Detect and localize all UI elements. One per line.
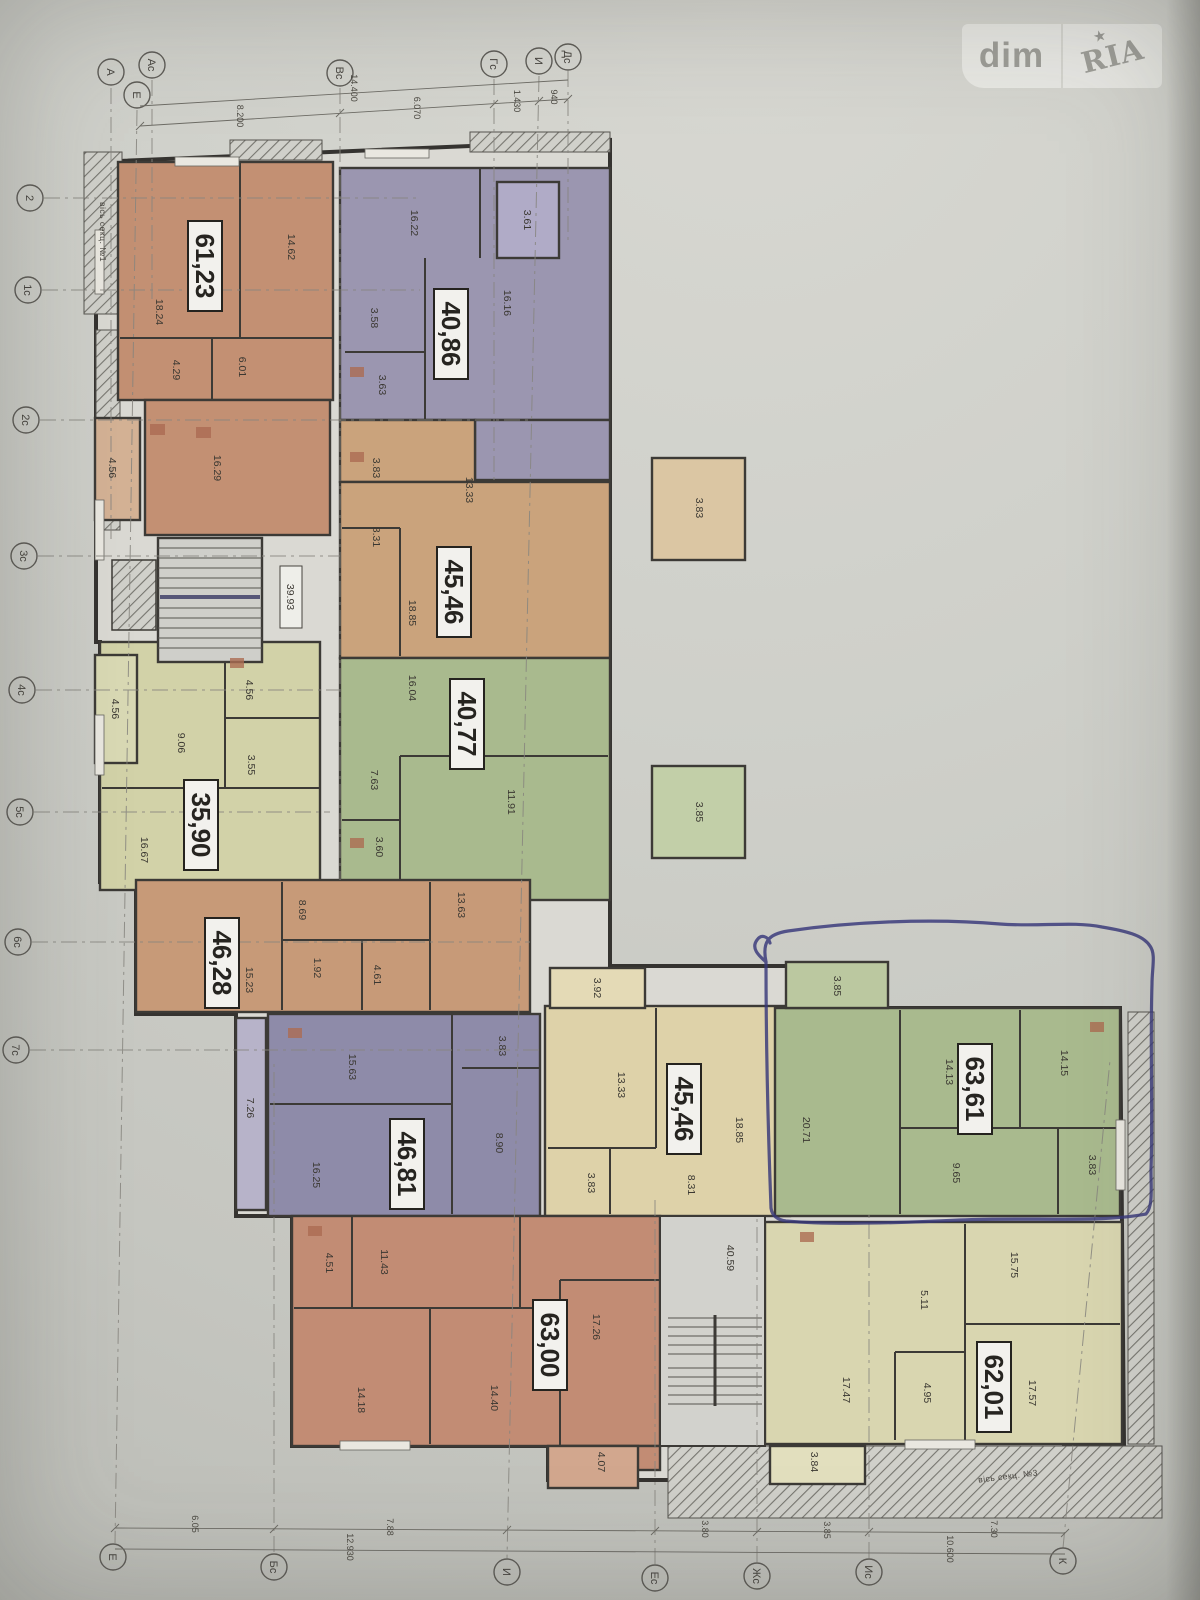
room-area-label: 11.91	[505, 789, 517, 815]
room-area-label: 1.92	[311, 958, 323, 979]
apartment-area-value: 63,00	[535, 1312, 565, 1377]
axis-label: И	[500, 1568, 512, 1576]
room-area-label: 4.51	[323, 1253, 335, 1274]
room-area-label: 17.47	[840, 1377, 852, 1403]
room-area-label: 16.25	[310, 1162, 322, 1188]
axis-label: 3с	[17, 550, 29, 562]
room-area-label: 6.01	[236, 357, 248, 378]
apartment-area-value: 46,28	[207, 930, 237, 995]
axis-label: 4с	[15, 684, 27, 696]
room-area-label: 9.06	[175, 733, 187, 754]
apartment-area-value: 61,23	[190, 233, 220, 298]
apartment-total-46-81: 46,81	[390, 1119, 424, 1209]
room-area-label: 3.83	[496, 1036, 508, 1057]
axis-label: Е	[106, 1553, 118, 1560]
room-area-label: 13.33	[463, 477, 475, 503]
room-area-label: 16.29	[211, 455, 223, 481]
ria-logo: RIA	[1078, 32, 1148, 80]
room-area-label: 3.55	[245, 755, 257, 776]
dim-logo: dim	[979, 36, 1044, 76]
dimension-value: 14.400	[349, 74, 359, 102]
room-area-label: 3.63	[376, 375, 388, 396]
apartment-total-45-46-lower: 45,46	[667, 1064, 701, 1154]
room-area-label: 15.75	[1008, 1252, 1020, 1278]
room-area-label: 4.56	[243, 680, 255, 701]
corridor-area-label: 40.59	[724, 1245, 736, 1271]
room-area-label: 15.23	[243, 967, 255, 993]
dimension-value: 6.05	[190, 1515, 200, 1533]
room-area-label: 16.22	[408, 210, 420, 236]
axis-label: 2с	[19, 414, 31, 426]
room-area-label: 5.11	[918, 1290, 930, 1310]
apartment-63-61	[775, 962, 1120, 1216]
room-area-label: 8.31	[685, 1175, 697, 1196]
axis-label: И	[532, 57, 544, 65]
room-area-label: 3.84	[808, 1452, 820, 1473]
axis-label: 7с	[9, 1044, 21, 1056]
axis-label: Е	[130, 91, 142, 98]
room-area-label: 11.43	[378, 1249, 390, 1275]
room-area-label: 16.16	[501, 290, 513, 316]
dimension-value: 6.070	[412, 97, 422, 120]
axis-label: 5с	[13, 806, 25, 818]
apartment-46-81	[236, 1014, 540, 1216]
elevator-shaft	[112, 560, 156, 630]
dimension-value: 10.600	[945, 1535, 955, 1563]
apartment-area-value: 45,46	[669, 1076, 699, 1141]
room-area-label: 3.58	[368, 308, 380, 329]
room-area-label: 16.04	[406, 675, 418, 701]
dimension-value: 1.430	[512, 90, 522, 113]
apartment-40-77	[340, 658, 745, 900]
paper-background: А Е Ас Вс Гс И Дс 2 1с 2с 3с 4с 5с 6с 7с…	[0, 0, 1200, 1600]
floor-plan-drawing: А Е Ас Вс Гс И Дс 2 1с 2с 3с 4с 5с 6с 7с…	[0, 0, 1200, 1600]
room-area-label: 3.83	[1086, 1155, 1098, 1176]
apartment-total-63-00: 63,00	[533, 1300, 567, 1390]
room-area-label: 3.92	[591, 978, 603, 999]
room-area-label: 4.95	[921, 1383, 933, 1404]
axis-label: Вс	[333, 67, 345, 80]
axis-label: 2	[23, 195, 35, 201]
room-area-label: 3.61	[521, 210, 533, 231]
room-area-label: 9.65	[950, 1163, 962, 1184]
dimension-value: 3.85	[822, 1521, 832, 1539]
apartment-area-value: 46,81	[392, 1131, 422, 1196]
apartment-total-40-77: 40,77	[450, 679, 484, 769]
room-area-label: 3.83	[693, 498, 705, 519]
axis-label: Жс	[750, 1568, 762, 1584]
apartment-total-61-23: 61,23	[188, 221, 222, 311]
room-area-label: 4.61	[371, 965, 383, 986]
apartment-area-value: 40,86	[436, 301, 466, 366]
apartment-total-40-86: 40,86	[434, 289, 468, 379]
room-area-label: 13.33	[615, 1072, 627, 1098]
room-area-label: 4.56	[106, 458, 118, 479]
dimension-value: 7.30	[989, 1520, 999, 1538]
room-area-label: 14.62	[285, 234, 297, 260]
apartment-area-value: 35,90	[186, 792, 216, 857]
room-area-label: 14.18	[355, 1387, 367, 1413]
room-area-label: 7.63	[368, 770, 380, 791]
axis-label: Дс	[561, 51, 573, 64]
room-area-label: 13.63	[455, 892, 467, 918]
axis-label: А	[104, 68, 116, 76]
dimension-value: 7.88	[385, 1518, 395, 1536]
room-area-label: 8.31	[370, 527, 382, 548]
axis-label: Бс	[267, 1561, 279, 1574]
room-area-label: 18.85	[406, 600, 418, 626]
dimension-value: 8.200	[235, 105, 245, 128]
apartment-area-value: 63,61	[960, 1056, 990, 1121]
dimria-watermark: dim ★ RIA	[962, 24, 1162, 88]
axis-label: Гс	[487, 58, 499, 70]
axis-label: Ас	[145, 59, 157, 72]
room-area-label: 17.26	[590, 1314, 602, 1340]
room-area-label: 18.85	[733, 1117, 745, 1143]
apartment-area-value: 45,46	[439, 559, 469, 624]
section-note-top: вісь секц. №1	[98, 202, 108, 262]
room-area-label: 3.85	[831, 976, 843, 997]
room-area-label: 14.15	[1058, 1050, 1070, 1076]
lower-corridor	[660, 1216, 765, 1446]
room-area-label: 14.40	[488, 1385, 500, 1411]
apartment-total-63-61: 63,61	[958, 1044, 992, 1134]
apartment-total-46-28: 46,28	[205, 918, 239, 1008]
apartment-46-28	[136, 880, 530, 1012]
dimension-value: 12.930	[345, 1533, 355, 1561]
axis-label: 6с	[11, 936, 23, 948]
axis-label: Ис	[862, 1565, 874, 1579]
room-area-label: 15.63	[346, 1054, 358, 1080]
apartment-area-value: 62,01	[979, 1354, 1009, 1419]
floor-plan-photo: А Е Ас Вс Гс И Дс 2 1с 2с 3с 4с 5с 6с 7с…	[0, 0, 1200, 1600]
room-area-label: 14.13	[943, 1059, 955, 1085]
apartment-total-62-01: 62,01	[977, 1342, 1011, 1432]
stairwell-area-label: 39.93	[284, 584, 296, 610]
axis-label: Ес	[648, 1572, 660, 1585]
room-area-label: 3.60	[373, 837, 385, 858]
apartments	[95, 162, 1122, 1488]
apartment-total-45-46-upper: 45,46	[437, 547, 471, 637]
dimension-value: 3.80	[700, 1520, 710, 1538]
axis-label: 1с	[21, 284, 33, 296]
ria-logo-tile: ★ RIA	[1063, 24, 1162, 88]
room-area-label: 20.71	[800, 1117, 812, 1143]
apartment-area-value: 40,77	[452, 691, 482, 756]
room-area-label: 3.85	[693, 802, 705, 823]
room-area-label: 4.56	[109, 699, 121, 720]
room-area-label: 17.57	[1026, 1380, 1038, 1406]
room-area-label: 8.90	[493, 1133, 505, 1154]
room-area-label: 3.83	[370, 458, 382, 479]
room-area-label: 4.07	[595, 1452, 607, 1473]
room-area-label: 7.26	[244, 1098, 256, 1119]
axis-label: К	[1056, 1558, 1068, 1565]
room-area-label: 16.67	[138, 837, 150, 863]
room-area-label: 4.29	[170, 360, 182, 381]
room-area-label: 8.69	[296, 900, 308, 921]
dim-logo-tile: dim	[962, 24, 1061, 88]
apartment-total-35-90: 35,90	[184, 780, 218, 870]
room-area-label: 18.24	[153, 299, 165, 325]
dimension-value: 940	[549, 89, 559, 104]
room-area-label: 3.83	[585, 1173, 597, 1194]
